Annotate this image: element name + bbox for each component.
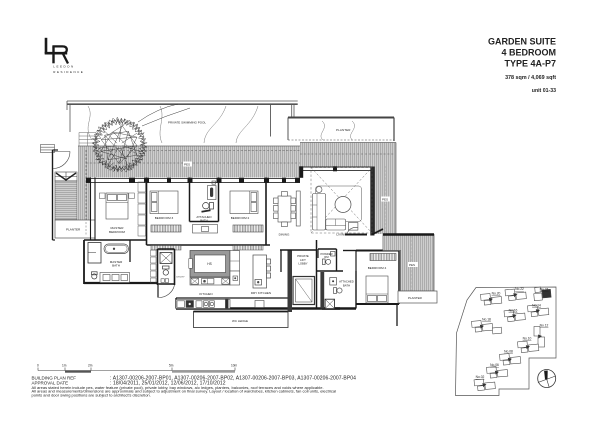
svg-text:BATH: BATH <box>200 219 208 223</box>
svg-text:TYPE 4A-P7: TYPE 4A-P7 <box>504 59 556 69</box>
svg-text:WC LEDGE: WC LEDGE <box>232 319 248 323</box>
svg-text:PES: PES <box>409 263 415 267</box>
svg-text:HS: HS <box>207 262 211 266</box>
svg-text:points and door swing position: points and door swing positions are subj… <box>32 392 151 397</box>
svg-text:unit 01-33: unit 01-33 <box>532 88 556 94</box>
svg-text:PRIVATE SWIMMING POOL: PRIVATE SWIMMING POOL <box>168 121 206 125</box>
svg-text:No.14: No.14 <box>532 304 541 308</box>
svg-text:DINING: DINING <box>279 232 290 236</box>
svg-text:BEDROOM 4: BEDROOM 4 <box>368 266 387 270</box>
svg-text:BEDROOM: BEDROOM <box>109 230 125 234</box>
svg-text:BATH: BATH <box>112 264 120 268</box>
svg-text:POWDER: POWDER <box>320 252 332 256</box>
svg-text:No.02: No.02 <box>476 375 485 379</box>
svg-text:378 sqm / 4,069 sqft: 378 sqm / 4,069 sqft <box>505 75 556 81</box>
svg-text:LEEDON: LEEDON <box>53 64 74 68</box>
svg-text:PLANTER: PLANTER <box>66 228 81 232</box>
svg-text:DRY KITCHEN: DRY KITCHEN <box>251 291 271 295</box>
svg-text:LOBBY: LOBBY <box>298 262 307 266</box>
svg-text:PLANTER: PLANTER <box>408 296 423 300</box>
svg-text:BEDROOM 3: BEDROOM 3 <box>155 216 174 220</box>
svg-text:KITCHEN: KITCHEN <box>199 292 212 296</box>
svg-text:2m: 2m <box>88 364 93 368</box>
svg-text:4 BEDROOM: 4 BEDROOM <box>501 48 556 58</box>
svg-text:No.12: No.12 <box>540 324 549 328</box>
svg-text:No.06: No.06 <box>490 363 499 367</box>
svg-text:0: 0 <box>37 364 39 368</box>
svg-text:No.24: No.24 <box>540 288 549 292</box>
svg-text:5m: 5m <box>169 364 174 368</box>
svg-text:BATH: BATH <box>343 283 350 287</box>
svg-text:No.18: No.18 <box>482 318 491 322</box>
svg-text:BEDROOM 2: BEDROOM 2 <box>231 216 250 220</box>
svg-text:10m: 10m <box>231 364 238 368</box>
svg-text:PES: PES <box>382 198 388 202</box>
svg-text:No.08: No.08 <box>504 350 513 354</box>
svg-text:RESIDENCE: RESIDENCE <box>53 70 84 74</box>
svg-text:GARDEN SUITE: GARDEN SUITE <box>488 37 556 47</box>
svg-text:PES: PES <box>184 163 190 167</box>
svg-text:PLANTER: PLANTER <box>336 128 351 132</box>
svg-text:No.10: No.10 <box>523 337 532 341</box>
svg-text:UTILITY: UTILITY <box>176 277 185 279</box>
svg-text:1m: 1m <box>62 364 67 368</box>
svg-text:No.20: No.20 <box>492 292 501 296</box>
svg-text:No.16: No.16 <box>509 309 518 313</box>
svg-text:No.22: No.22 <box>515 287 524 291</box>
